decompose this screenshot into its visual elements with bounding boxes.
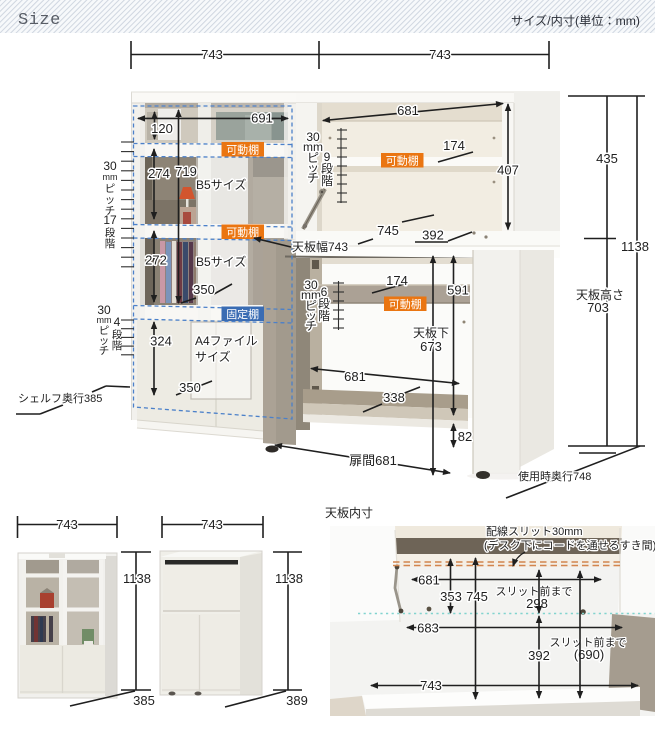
svg-text:389: 389 [286, 693, 308, 708]
svg-text:743: 743 [201, 517, 223, 532]
svg-text:B5サイズ: B5サイズ [196, 177, 246, 192]
svg-text:(690): (690) [574, 647, 604, 662]
svg-text:1138: 1138 [621, 239, 649, 254]
svg-text:703: 703 [587, 300, 609, 315]
svg-text:1138: 1138 [275, 571, 303, 586]
svg-text:338: 338 [383, 390, 405, 405]
svg-text:扉間681: 扉間681 [349, 453, 397, 468]
svg-text:使用時奥行748: 使用時奥行748 [518, 469, 591, 483]
svg-text:天板幅743: 天板幅743 [292, 239, 348, 254]
svg-text:719: 719 [175, 164, 197, 179]
svg-text:配線スリット30mm: 配線スリット30mm [486, 525, 583, 538]
svg-text:591: 591 [447, 283, 469, 298]
svg-text:階: 階 [105, 238, 116, 250]
svg-text:407: 407 [497, 163, 519, 178]
svg-text:298: 298 [526, 596, 548, 611]
svg-text:82: 82 [458, 429, 472, 444]
svg-text:17: 17 [103, 213, 117, 227]
svg-text:チ: チ [305, 319, 317, 333]
svg-text:681: 681 [397, 103, 419, 118]
svg-text:743: 743 [420, 678, 442, 693]
svg-text:743: 743 [201, 47, 223, 62]
svg-text:固定棚: 固定棚 [226, 307, 259, 321]
svg-text:階: 階 [112, 340, 123, 352]
svg-text:743: 743 [56, 517, 78, 532]
svg-text:350: 350 [193, 282, 215, 297]
svg-text:392: 392 [422, 228, 444, 243]
svg-text:可動棚: 可動棚 [226, 225, 259, 239]
svg-text:Size: Size [18, 11, 61, 30]
svg-text:681: 681 [344, 369, 366, 384]
svg-text:シェルフ奥行385: シェルフ奥行385 [18, 391, 102, 405]
svg-text:サイズ: サイズ [195, 349, 231, 364]
svg-text:サイズ/内寸(単位：mm): サイズ/内寸(単位：mm) [511, 13, 640, 28]
svg-text:691: 691 [251, 111, 273, 126]
svg-text:チ: チ [99, 345, 110, 357]
svg-text:1138: 1138 [123, 571, 151, 586]
svg-text:階: 階 [318, 309, 330, 323]
svg-text:385: 385 [133, 693, 155, 708]
svg-text:120: 120 [151, 121, 173, 136]
svg-text:683: 683 [417, 621, 439, 636]
svg-text:可動棚: 可動棚 [226, 143, 259, 157]
svg-text:743: 743 [429, 47, 451, 62]
svg-text:チ: チ [307, 171, 319, 185]
svg-text:mm: mm [97, 315, 112, 325]
svg-text:392: 392 [528, 648, 550, 663]
svg-text:353: 353 [440, 589, 462, 604]
svg-text:681: 681 [418, 573, 440, 588]
svg-text:324: 324 [150, 334, 172, 349]
svg-text:673: 673 [420, 339, 442, 354]
svg-text:階: 階 [321, 174, 333, 188]
svg-text:274: 274 [148, 166, 170, 181]
svg-text:350: 350 [179, 380, 201, 395]
svg-text:(デスク下にコードを通せるすき間): (デスク下にコードを通せるすき間) [484, 538, 655, 552]
svg-text:30: 30 [103, 159, 117, 173]
svg-text:174: 174 [386, 273, 408, 288]
svg-text:天板内寸: 天板内寸 [325, 506, 373, 520]
svg-text:B5サイズ: B5サイズ [196, 254, 246, 269]
svg-text:435: 435 [596, 151, 618, 166]
svg-text:天板下: 天板下 [413, 326, 449, 340]
svg-text:272: 272 [145, 253, 167, 268]
svg-text:4: 4 [114, 315, 121, 329]
svg-text:mm: mm [103, 172, 118, 182]
svg-text:A4ファイル: A4ファイル [195, 334, 258, 348]
svg-text:745: 745 [377, 223, 399, 238]
svg-text:可動棚: 可動棚 [389, 297, 422, 311]
svg-text:174: 174 [443, 138, 465, 153]
svg-text:可動棚: 可動棚 [386, 154, 419, 168]
svg-text:745: 745 [466, 589, 488, 604]
